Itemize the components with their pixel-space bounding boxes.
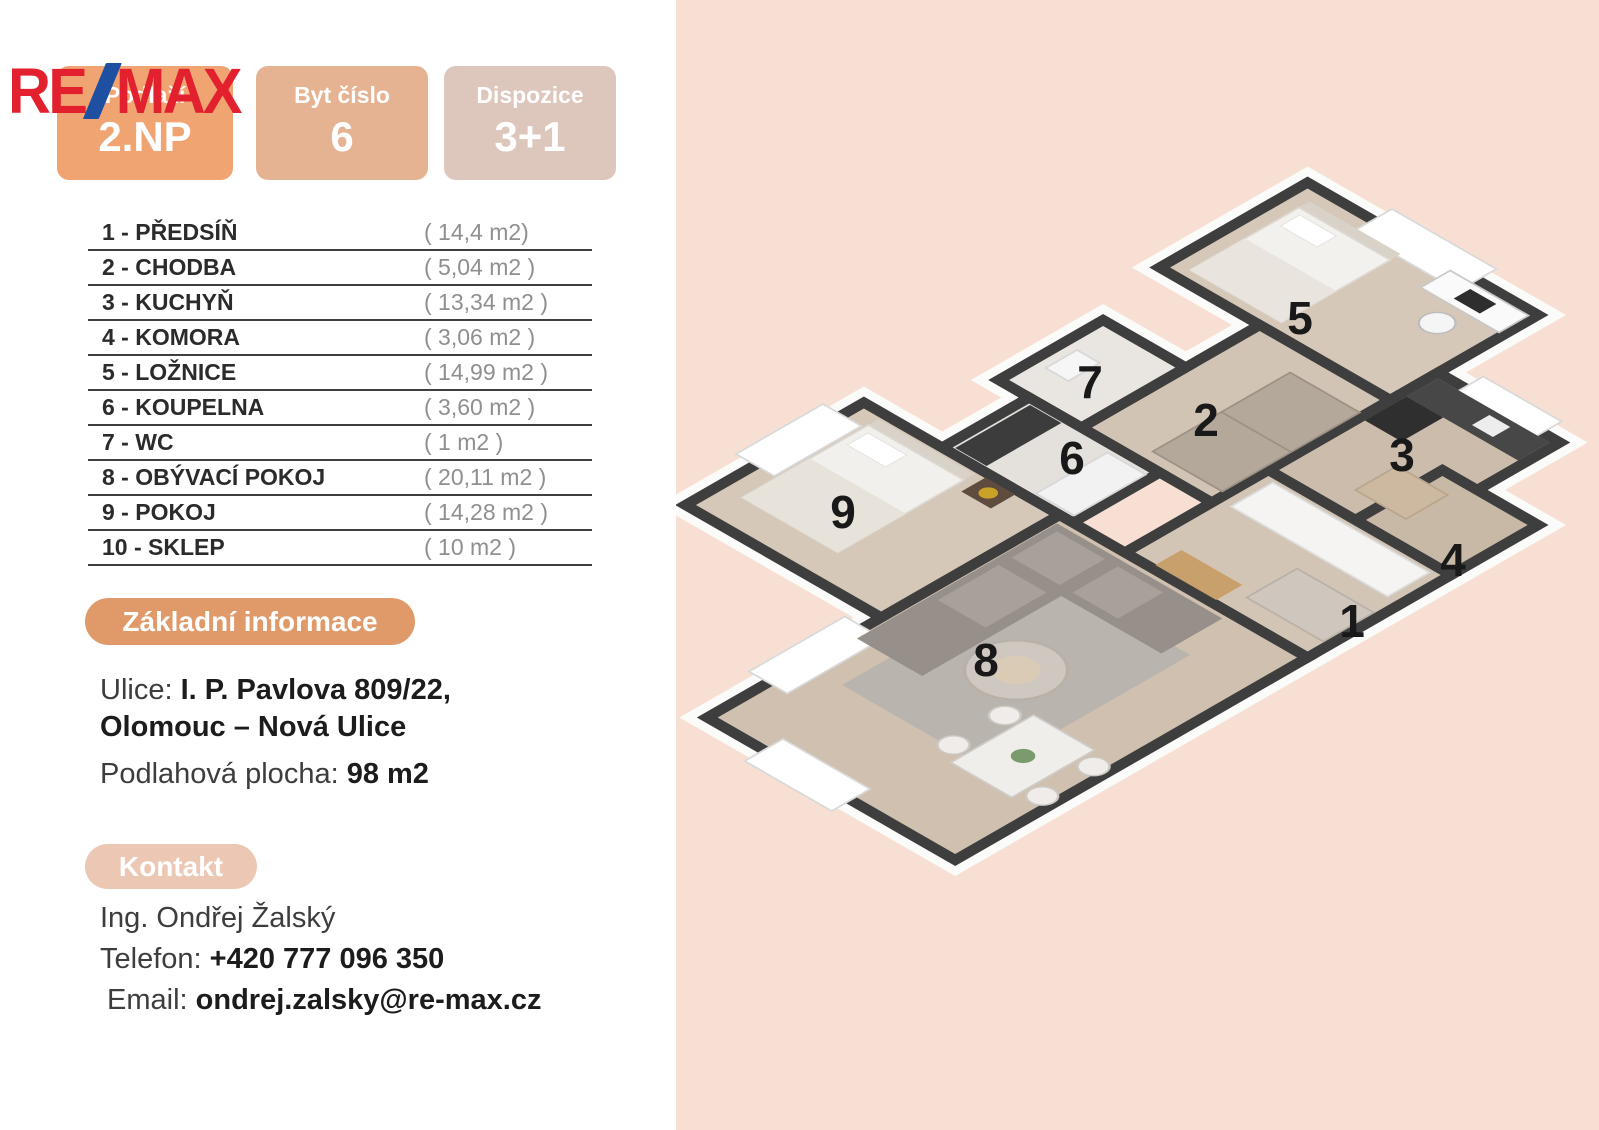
room-area: ( 14,99 m2 ): [424, 359, 548, 386]
room-area: ( 5,04 m2 ): [424, 254, 535, 281]
contact-block: Ing. Ondřej Žalský Telefon: +420 777 096…: [100, 898, 541, 1021]
plan-number-9: 9: [830, 486, 856, 538]
phone-line: Telefon: +420 777 096 350: [100, 939, 541, 980]
floorplan-panel: 5 7 2 3 6 9 4 1 8: [676, 0, 1599, 1130]
floor-area-label: Podlahová plocha:: [100, 758, 339, 790]
plan-number-3: 3: [1389, 429, 1415, 481]
basic-info-pill: Základní informace: [85, 598, 415, 645]
badge-unit-label: Byt číslo: [256, 82, 428, 109]
street-label: Ulice:: [100, 674, 173, 706]
room-name: 8 - OBÝVACÍ POKOJ: [88, 464, 424, 491]
remax-logo: RE MAX: [8, 54, 240, 128]
phone-link[interactable]: +420 777 096 350: [210, 943, 445, 975]
email-line: Email: ondrej.zalsky@re-max.cz: [100, 980, 541, 1021]
room-name: 10 - SKLEP: [88, 534, 424, 561]
room-area: ( 14,28 m2 ): [424, 499, 548, 526]
plan-number-7: 7: [1077, 356, 1103, 408]
plan-number-1: 1: [1339, 595, 1365, 647]
flyer-page: { "logo": { "re": "RE", "slash_icon": "/…: [0, 0, 1599, 1130]
badge-layout-label: Dispozice: [444, 82, 616, 109]
plan-number-8: 8: [973, 634, 999, 686]
room-name: 3 - KUCHYŇ: [88, 289, 424, 316]
street-value-line1: I. P. Pavlova 809/22,: [181, 674, 451, 706]
plan-number-4: 4: [1440, 534, 1466, 586]
remax-logo-re: RE: [8, 54, 85, 128]
table-row: 1 - PŘEDSÍŇ ( 14,4 m2): [88, 216, 592, 251]
table-row: 7 - WC ( 1 m2 ): [88, 426, 592, 461]
room-name: 6 - KOUPELNA: [88, 394, 424, 421]
table-row: 9 - POKOJ ( 14,28 m2 ): [88, 496, 592, 531]
street-value-line2: Olomouc – Nová Ulice: [100, 709, 451, 746]
email-label: Email:: [107, 984, 188, 1016]
room-name: 1 - PŘEDSÍŇ: [88, 219, 424, 246]
agent-name: Ing. Ondřej Žalský: [100, 898, 541, 939]
table-row: 10 - SKLEP ( 10 m2 ): [88, 531, 592, 566]
email-link[interactable]: ondrej.zalsky@re-max.cz: [196, 984, 542, 1016]
table-row: 4 - KOMORA ( 3,06 m2 ): [88, 321, 592, 356]
room-area: ( 10 m2 ): [424, 534, 516, 561]
room-area: ( 3,60 m2 ): [424, 394, 535, 421]
phone-label: Telefon:: [100, 943, 202, 975]
room-name: 2 - CHODBA: [88, 254, 424, 281]
room-area: ( 13,34 m2 ): [424, 289, 548, 316]
room-list-table: 1 - PŘEDSÍŇ ( 14,4 m2) 2 - CHODBA ( 5,04…: [88, 216, 592, 566]
plan-number-6: 6: [1059, 432, 1085, 484]
basic-info-title: Základní informace: [122, 606, 377, 638]
plan-number-2: 2: [1193, 394, 1219, 446]
table-row: 8 - OBÝVACÍ POKOJ ( 20,11 m2 ): [88, 461, 592, 496]
street-line: Ulice: I. P. Pavlova 809/22,: [100, 672, 451, 709]
room-area: ( 3,06 m2 ): [424, 324, 535, 351]
room-area: ( 1 m2 ): [424, 429, 503, 456]
table-row: 5 - LOŽNICE ( 14,99 m2 ): [88, 356, 592, 391]
room-area: ( 14,4 m2): [424, 219, 529, 246]
floorplan-iso-group: [676, 143, 1599, 871]
floorplan-3d-render: 5 7 2 3 6 9 4 1 8: [676, 0, 1599, 1130]
basic-info-block: Ulice: I. P. Pavlova 809/22, Olomouc – N…: [100, 672, 451, 793]
room-name: 9 - POKOJ: [88, 499, 424, 526]
contact-pill: Kontakt: [85, 844, 257, 889]
floor-area-value: 98 m2: [347, 758, 429, 790]
floor-area-line: Podlahová plocha: 98 m2: [100, 756, 451, 793]
plan-number-5: 5: [1287, 292, 1313, 344]
badge-layout-value: 3+1: [444, 113, 616, 161]
badge-layout: Dispozice 3+1: [444, 66, 616, 180]
table-row: 6 - KOUPELNA ( 3,60 m2 ): [88, 391, 592, 426]
badge-unit-number: Byt číslo 6: [256, 66, 428, 180]
room-area: ( 20,11 m2 ): [424, 464, 546, 491]
table-row: 3 - KUCHYŇ ( 13,34 m2 ): [88, 286, 592, 321]
remax-logo-max: MAX: [116, 54, 240, 128]
room-name: 5 - LOŽNICE: [88, 359, 424, 386]
room-name: 7 - WC: [88, 429, 424, 456]
contact-title: Kontakt: [119, 851, 223, 883]
table-row: 2 - CHODBA ( 5,04 m2 ): [88, 251, 592, 286]
badge-unit-value: 6: [256, 113, 428, 161]
room-name: 4 - KOMORA: [88, 324, 424, 351]
